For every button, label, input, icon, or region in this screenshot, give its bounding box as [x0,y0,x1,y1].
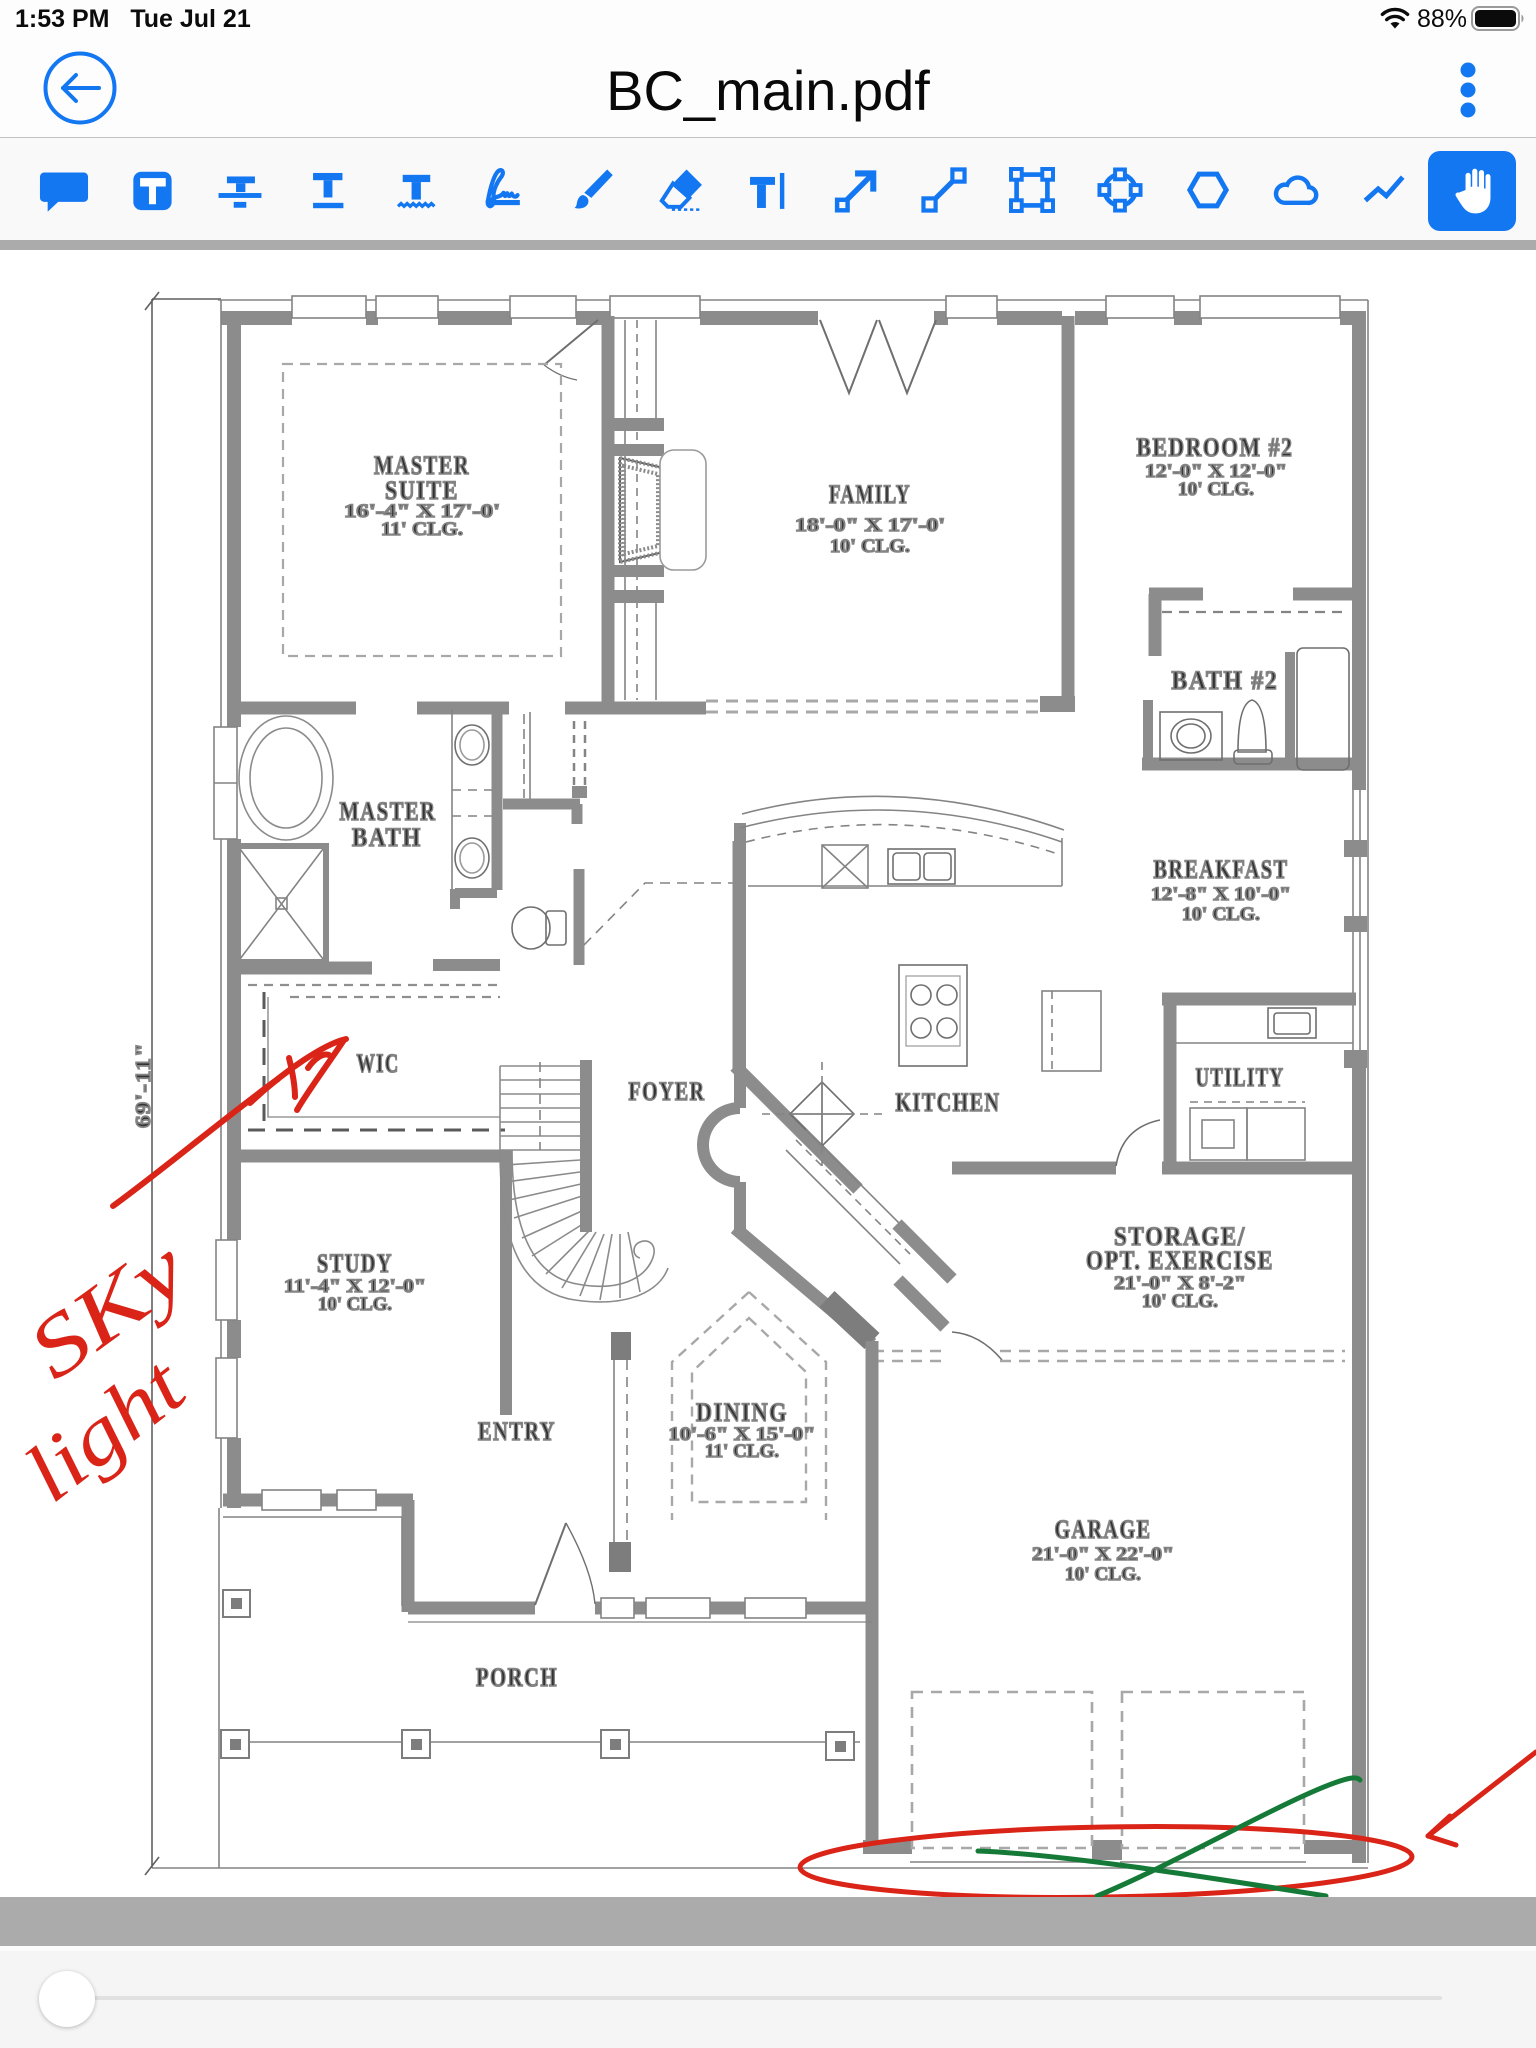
svg-text:BREAKFAST: BREAKFAST [1154,855,1289,884]
svg-text:BATH: BATH [352,823,422,852]
svg-text:11' CLG.: 11' CLG. [381,519,463,540]
svg-text:10' CLG.: 10' CLG. [1142,1291,1218,1312]
svg-text:10' CLG.: 10' CLG. [1178,479,1254,500]
svg-text:FOYER: FOYER [629,1077,706,1106]
svg-text:12'-8" X 10'-0": 12'-8" X 10'-0" [1151,884,1291,905]
svg-text:KITCHEN: KITCHEN [896,1088,1001,1117]
svg-text:11' CLG.: 11' CLG. [705,1441,779,1462]
svg-text:PORCH: PORCH [476,1663,558,1692]
svg-text:FAMILY: FAMILY [829,480,911,509]
svg-text:OPT. EXERCISE: OPT. EXERCISE [1086,1246,1274,1275]
svg-text:WIC: WIC [357,1049,400,1078]
svg-text:21'-0" X 22'-0": 21'-0" X 22'-0" [1032,1544,1174,1565]
svg-text:DINING: DINING [696,1398,788,1427]
svg-text:MASTER: MASTER [340,797,437,826]
svg-text:ENTRY: ENTRY [478,1417,556,1446]
svg-text:BATH #2: BATH #2 [1172,666,1279,695]
svg-text:BEDROOM #2: BEDROOM #2 [1137,433,1294,462]
svg-text:10' CLG.: 10' CLG. [318,1294,392,1315]
svg-text:10' CLG.: 10' CLG. [1182,904,1260,925]
svg-text:STUDY: STUDY [317,1249,393,1278]
svg-text:10' CLG.: 10' CLG. [830,536,910,557]
svg-text:GARAGE: GARAGE [1055,1515,1152,1544]
svg-text:69'-11": 69'-11" [131,1042,155,1128]
svg-text:18'-0" X 17'-0': 18'-0" X 17'-0' [795,515,945,536]
svg-text:10' CLG.: 10' CLG. [1065,1564,1141,1585]
svg-text:UTILITY: UTILITY [1196,1063,1285,1092]
